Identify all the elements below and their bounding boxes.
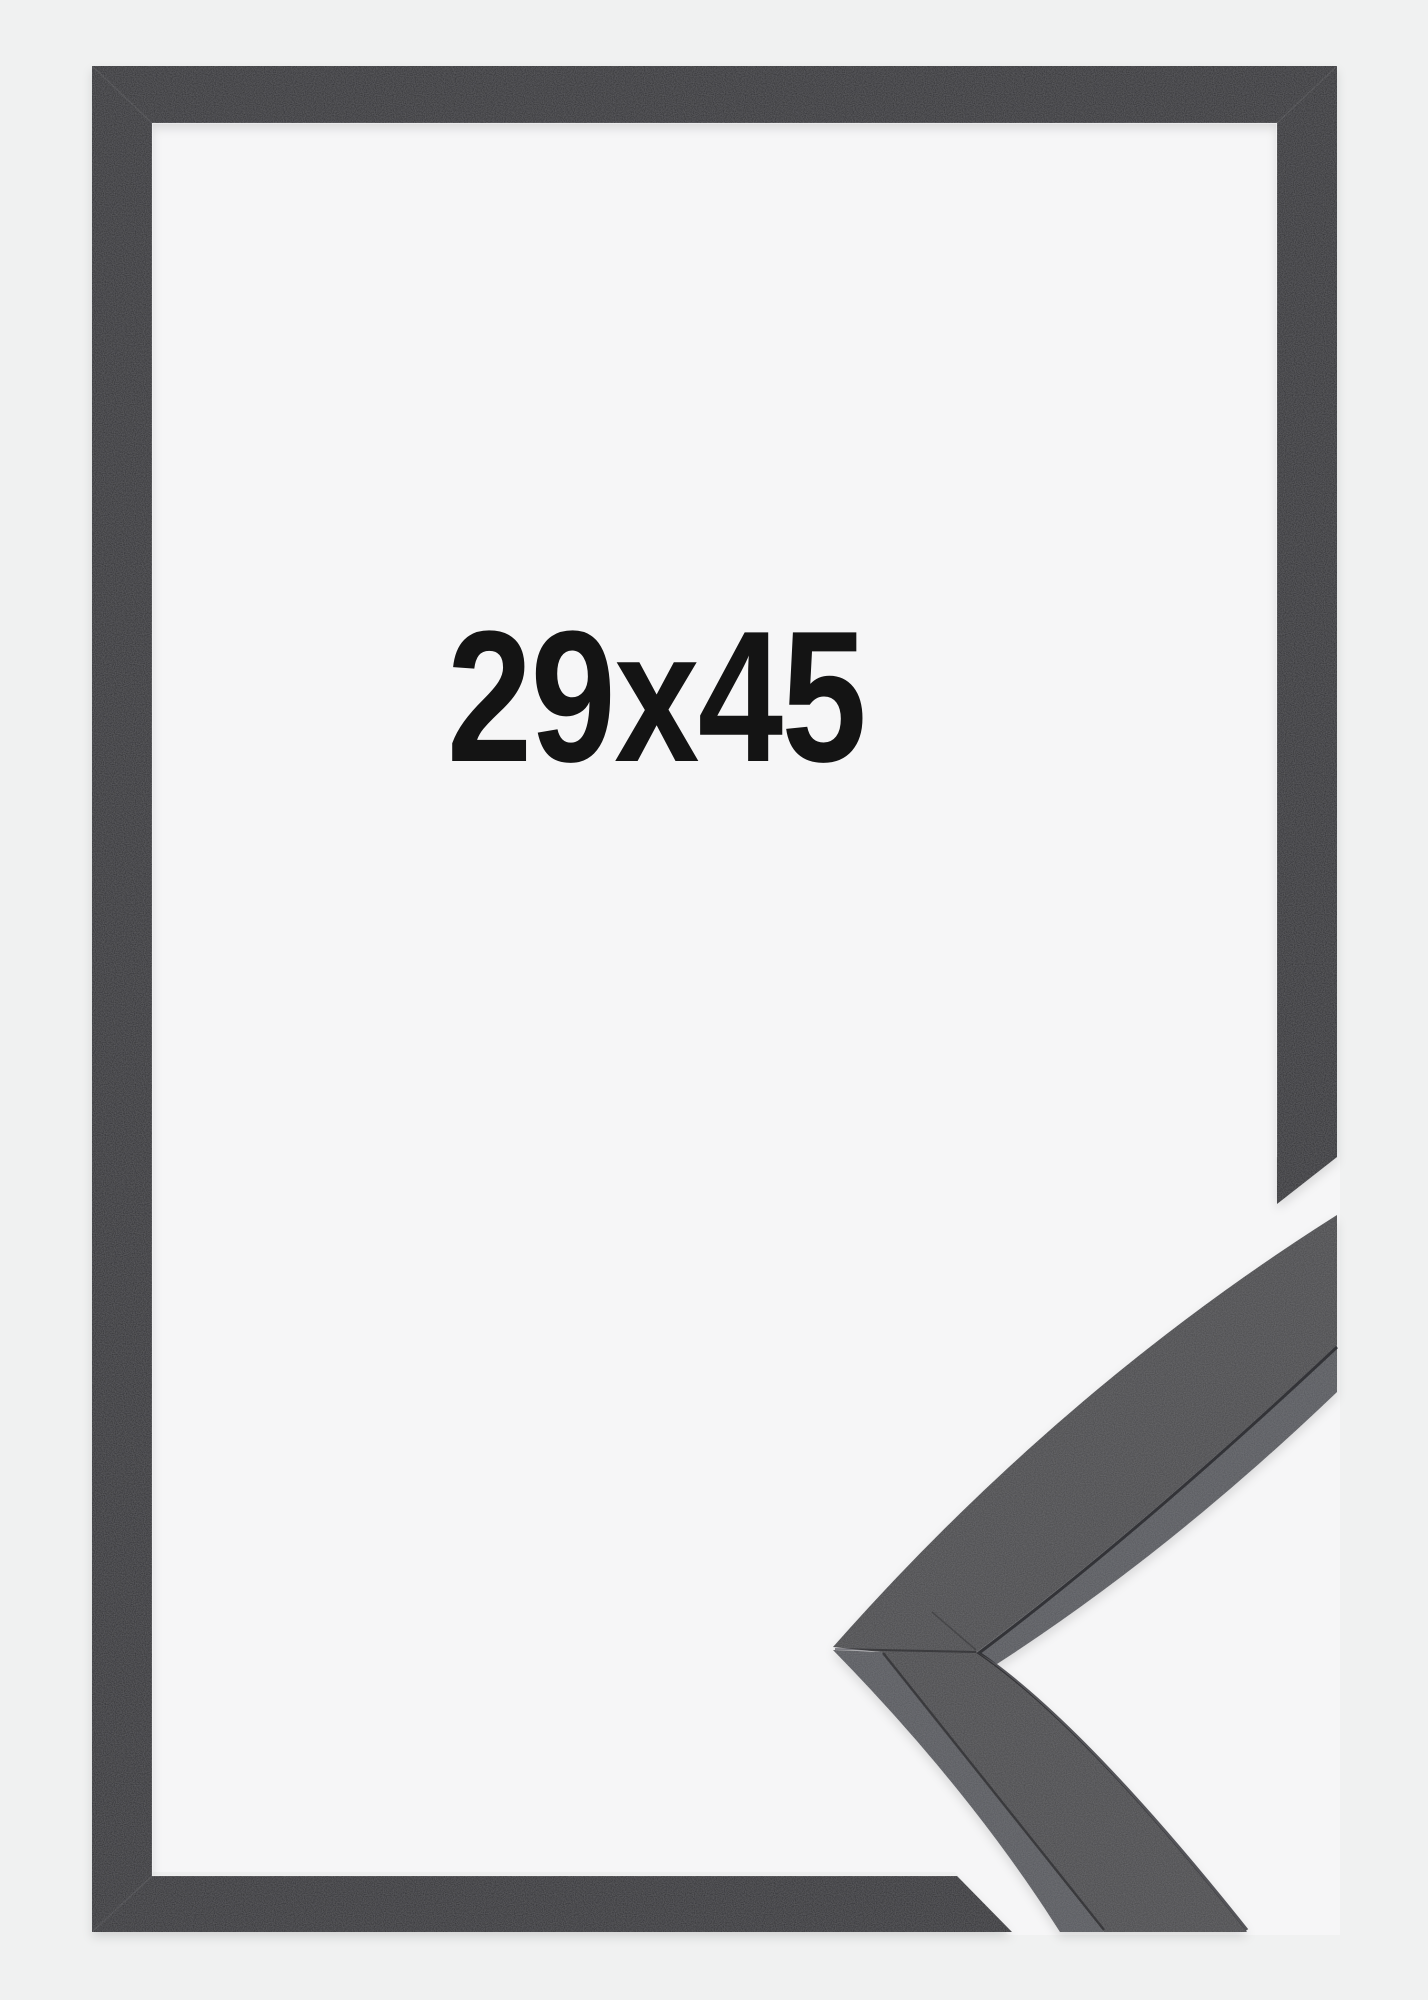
- frame-right-bar-cut: [1277, 66, 1337, 1204]
- frame-product-photo: 29x45: [0, 0, 1428, 2000]
- product-image: 29x45: [0, 0, 1428, 2000]
- frame-top-bar: [92, 66, 1337, 123]
- frame-left-bar: [92, 66, 152, 1932]
- frame-bottom-bar-cut: [92, 1876, 1012, 1932]
- backdrop-inside-frame: [152, 123, 1340, 1935]
- size-label: 29x45: [447, 593, 865, 802]
